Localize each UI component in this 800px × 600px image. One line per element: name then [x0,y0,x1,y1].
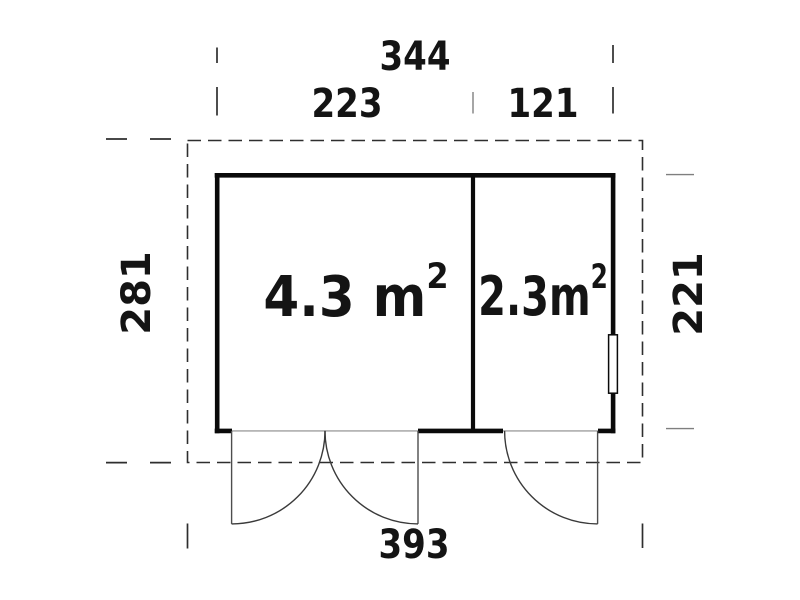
base-width-dimension: 393 [379,525,450,565]
left-room-width-dimension: 223 [312,84,383,124]
right-room-width-dimension: 121 [508,84,579,124]
window [609,335,618,393]
room-area-value-small: 2.3m [478,270,590,324]
room-area-label-small: 2.3m2 [478,270,608,324]
double-door-left-swing-arc [232,431,325,524]
room-area-value-large: 4.3 m [263,270,426,326]
room-area-superscript-small: 2 [591,260,608,293]
floor-plan: 344 223 121 281 221 393 4.3 m2 2.3m2 [0,0,800,600]
double-door [232,431,418,524]
dimension-extension-lines-gray [473,92,694,429]
room-area-superscript-large: 2 [426,260,448,295]
total-width-dimension: 344 [380,37,451,77]
single-door-swing-arc [505,431,598,524]
double-door-right-swing-arc [325,431,418,524]
room-area-label-large: 4.3 m2 [263,270,448,326]
left-depth-dimension: 281 [117,251,157,335]
right-depth-dimension: 221 [669,252,709,336]
single-door [505,431,598,524]
